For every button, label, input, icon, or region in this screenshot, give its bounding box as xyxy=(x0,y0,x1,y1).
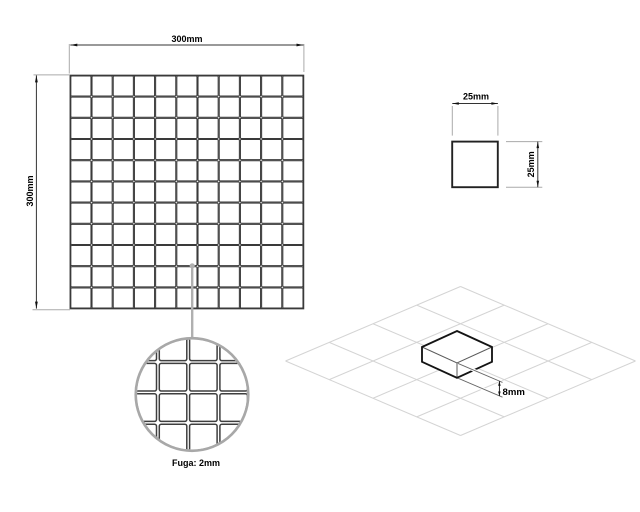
svg-text:300mm: 300mm xyxy=(171,34,202,44)
svg-text:Fuga: 2mm: Fuga: 2mm xyxy=(172,458,220,468)
svg-text:25mm: 25mm xyxy=(463,92,489,102)
svg-text:8mm: 8mm xyxy=(503,387,525,398)
svg-text:25mm: 25mm xyxy=(526,151,536,177)
svg-text:300mm: 300mm xyxy=(25,175,35,206)
